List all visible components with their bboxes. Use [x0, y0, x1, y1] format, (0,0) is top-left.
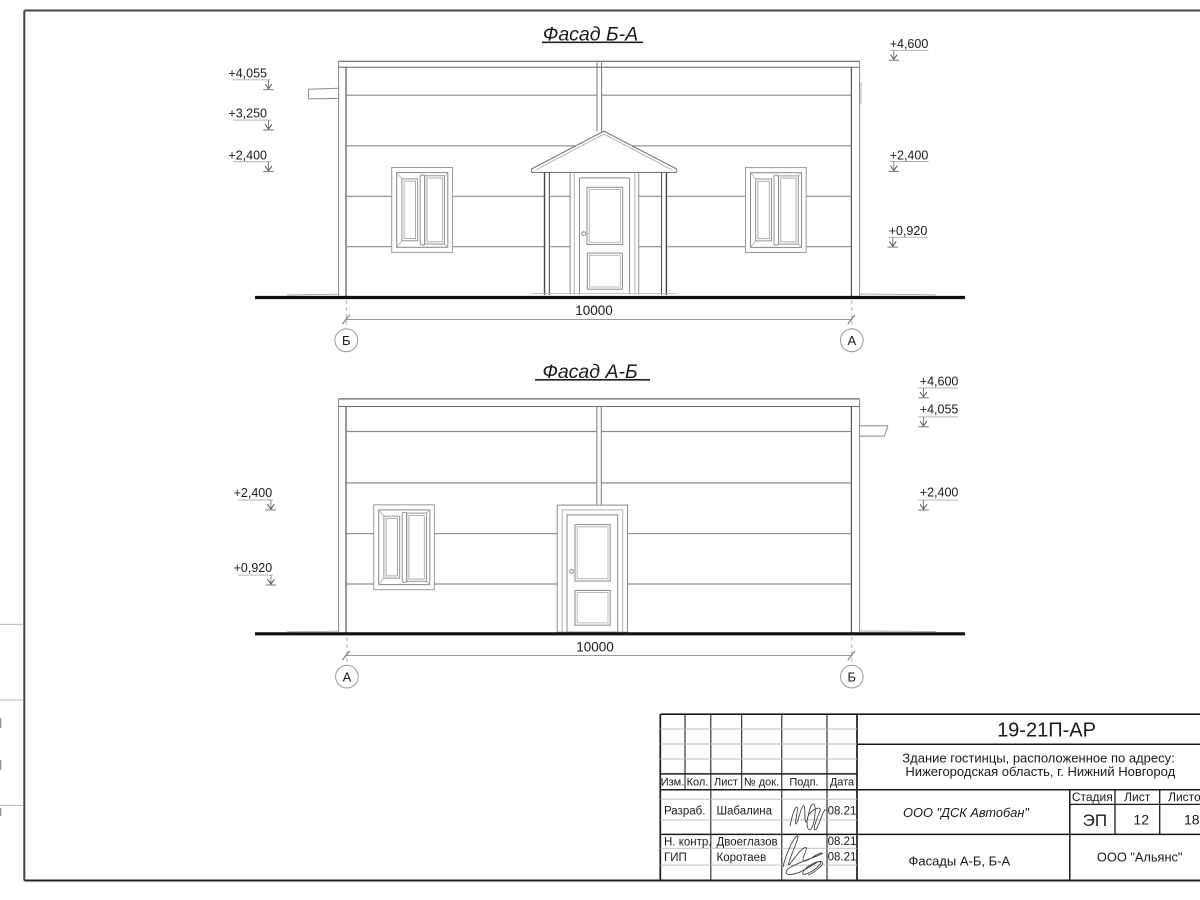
svg-text:А: А: [343, 669, 352, 684]
svg-text:+2,400: +2,400: [920, 486, 959, 500]
svg-text:Листов: Листов: [1168, 790, 1200, 804]
svg-text:Лист: Лист: [714, 777, 738, 789]
svg-text:+2,400: +2,400: [228, 148, 267, 162]
svg-text:08.21: 08.21: [828, 852, 857, 864]
svg-text:+4,600: +4,600: [890, 37, 929, 51]
svg-text:10000: 10000: [575, 303, 613, 318]
svg-text:19-21П-АР: 19-21П-АР: [997, 720, 1096, 742]
svg-text:Б: Б: [342, 333, 351, 348]
svg-text:+4,055: +4,055: [920, 403, 959, 417]
svg-text:Шабалина: Шабалина: [717, 806, 773, 818]
svg-text:Нижегородская область, г. Нижн: Нижегородская область, г. Нижний Новгоро…: [905, 764, 1175, 779]
svg-text:Подп.: Подп.: [789, 777, 818, 789]
svg-text:Стадия: Стадия: [1072, 790, 1113, 804]
svg-text:А: А: [847, 333, 856, 348]
svg-text:Лист: Лист: [1124, 790, 1151, 804]
svg-text:+4,055: +4,055: [228, 67, 267, 81]
svg-text:Фасады А-Б, Б-А: Фасады А-Б, Б-А: [908, 854, 1010, 869]
svg-text:Дата: Дата: [830, 777, 855, 789]
svg-text:+4,600: +4,600: [920, 374, 959, 388]
svg-text:10000: 10000: [576, 640, 614, 655]
svg-text:ООО "Альянс": ООО "Альянс": [1097, 850, 1183, 865]
svg-text:08.21: 08.21: [828, 836, 857, 848]
svg-text:№ док.: № док.: [744, 777, 779, 789]
svg-text:ЭП: ЭП: [1083, 811, 1107, 830]
svg-text:+0,920: +0,920: [889, 224, 928, 238]
svg-text:+2,400: +2,400: [234, 486, 273, 500]
svg-text:Изм.: Изм.: [661, 777, 685, 789]
svg-text:+0,920: +0,920: [234, 561, 273, 575]
svg-text:Б: Б: [848, 669, 857, 684]
svg-text:Кол.: Кол.: [687, 777, 709, 789]
svg-text:ГИП: ГИП: [664, 852, 687, 864]
svg-text:08.21: 08.21: [828, 805, 857, 817]
svg-text:12: 12: [1133, 812, 1149, 828]
svg-text:Разраб.: Разраб.: [664, 806, 705, 818]
svg-text:Двоеглазов: Двоеглазов: [717, 836, 778, 848]
svg-text:+2,400: +2,400: [890, 148, 929, 162]
svg-text:+3,250: +3,250: [228, 107, 267, 121]
svg-text:18: 18: [1184, 812, 1200, 828]
svg-text:ООО "ДСК Автобан": ООО "ДСК Автобан": [903, 805, 1030, 820]
svg-text:Н. контр.: Н. контр.: [664, 836, 711, 848]
svg-text:Коротаев: Коротаев: [717, 852, 767, 864]
